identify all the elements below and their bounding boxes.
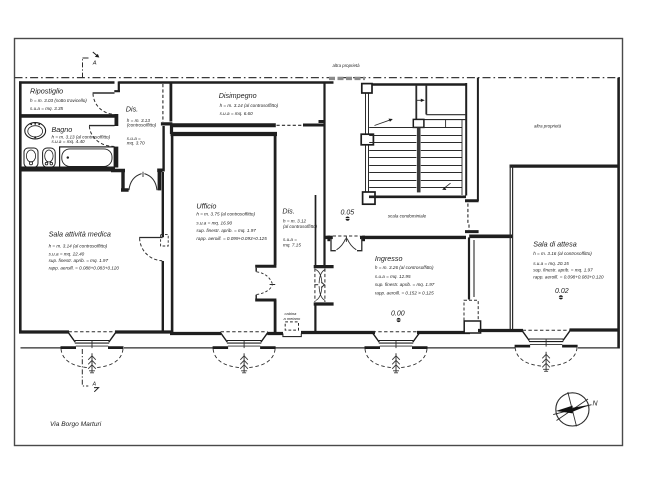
svg-text:0.02: 0.02 — [555, 288, 569, 295]
svg-text:s.u.a = mq. 4.40: s.u.a = mq. 4.40 — [52, 139, 86, 144]
svg-text:s.u.a = mq. 20.15: s.u.a = mq. 20.15 — [533, 261, 569, 266]
svg-text:Disimpegno: Disimpegno — [219, 91, 257, 100]
svg-text:Dis.: Dis. — [126, 104, 138, 113]
svg-text:s.u.a = mq. 16.90: s.u.a = mq. 16.90 — [196, 221, 232, 226]
svg-text:s.u.a = mq. 12.95: s.u.a = mq. 12.95 — [375, 274, 411, 279]
svg-text:sup. finestr. aprib. = mq. 1.9: sup. finestr. aprib. = mq. 1.97 — [196, 228, 256, 233]
svg-text:h = m. 3.26 (al controsoffitt: h = m. 3.26 (al controsoffitto) — [375, 265, 434, 270]
svg-text:(controsoffitto): (controsoffitto) — [127, 123, 157, 128]
svg-text:Via Borgo Marturi: Via Borgo Marturi — [50, 421, 102, 428]
svg-text:altra proprietà: altra proprietà — [333, 63, 361, 68]
svg-text:0.00: 0.00 — [391, 311, 405, 318]
svg-text:Dis.: Dis. — [282, 207, 294, 216]
svg-text:s.u.a = mq. 22.40: s.u.a = mq. 22.40 — [49, 252, 85, 257]
svg-text:h = m. 3.14 (al controsoffitt: h = m. 3.14 (al controsoffitto) — [49, 243, 108, 248]
svg-text:Sala attività medica: Sala attività medica — [49, 229, 111, 238]
svg-text:sup. finestr. aprib. = mq. 1.: sup. finestr. aprib. = mq. 1.97 — [533, 267, 593, 272]
svg-text:Ripostiglio: Ripostiglio — [30, 87, 63, 96]
svg-text:sup. finestr. aprib. = mq. 1.9: sup. finestr. aprib. = mq. 1.97 — [375, 282, 435, 287]
svg-text:A: A — [92, 61, 97, 67]
svg-text:rapp. aeroill. = 0.099+0.093+: rapp. aeroill. = 0.099+0.093+0.125 — [196, 236, 267, 241]
svg-text:Bagno: Bagno — [52, 125, 73, 134]
svg-text:h = m. 3.12: h = m. 3.12 — [283, 219, 307, 224]
svg-text:s.u.a = mq. 3.35: s.u.a = mq. 3.35 — [30, 106, 64, 111]
svg-text:Sala di attesa: Sala di attesa — [533, 240, 577, 249]
svg-text:Ufficio: Ufficio — [196, 201, 216, 210]
svg-text:a metano: a metano — [284, 316, 301, 321]
svg-text:0.05: 0.05 — [341, 210, 355, 217]
svg-text:altra proprietà: altra proprietà — [534, 124, 562, 129]
svg-text:(al controsoffitto): (al controsoffitto) — [283, 224, 318, 229]
svg-text:rapp. aeroill. = 0.088+0.083: rapp. aeroill. = 0.088+0.083+0.120 — [49, 266, 120, 271]
svg-text:h = m. 3.14 (al controsoffitt: h = m. 3.14 (al controsoffitto) — [220, 103, 279, 108]
svg-text:s.u.a =: s.u.a = — [283, 237, 297, 242]
svg-text:rapp. aeroill. = 0.152 > 0.125: rapp. aeroill. = 0.152 > 0.125 — [375, 290, 434, 295]
svg-text:h = m. 3.75 (al controsoffitt: h = m. 3.75 (al controsoffitto) — [196, 211, 255, 216]
svg-text:rapp. aeroill. = 0.098+0.083: rapp. aeroill. = 0.098+0.083+0.120 — [533, 275, 604, 280]
svg-text:mq. 7.15: mq. 7.15 — [283, 243, 301, 248]
svg-text:mq. 3.70: mq. 3.70 — [127, 141, 145, 146]
svg-text:h = m. 3.03 (sotto travicello: h = m. 3.03 (sotto travicello) — [30, 98, 87, 103]
svg-text:h = m. 3.16 (al controsoffitt: h = m. 3.16 (al controsoffitto) — [533, 251, 592, 256]
svg-text:A: A — [92, 381, 97, 387]
svg-text:s.u.a = mq. 6.60: s.u.a = mq. 6.60 — [220, 111, 254, 116]
svg-text:Ingresso: Ingresso — [375, 254, 403, 263]
svg-text:scala condominiale: scala condominiale — [388, 214, 427, 219]
svg-text:sup. finestr. aprib. = mq. 1: sup. finestr. aprib. = mq. 1.97 — [49, 258, 109, 263]
